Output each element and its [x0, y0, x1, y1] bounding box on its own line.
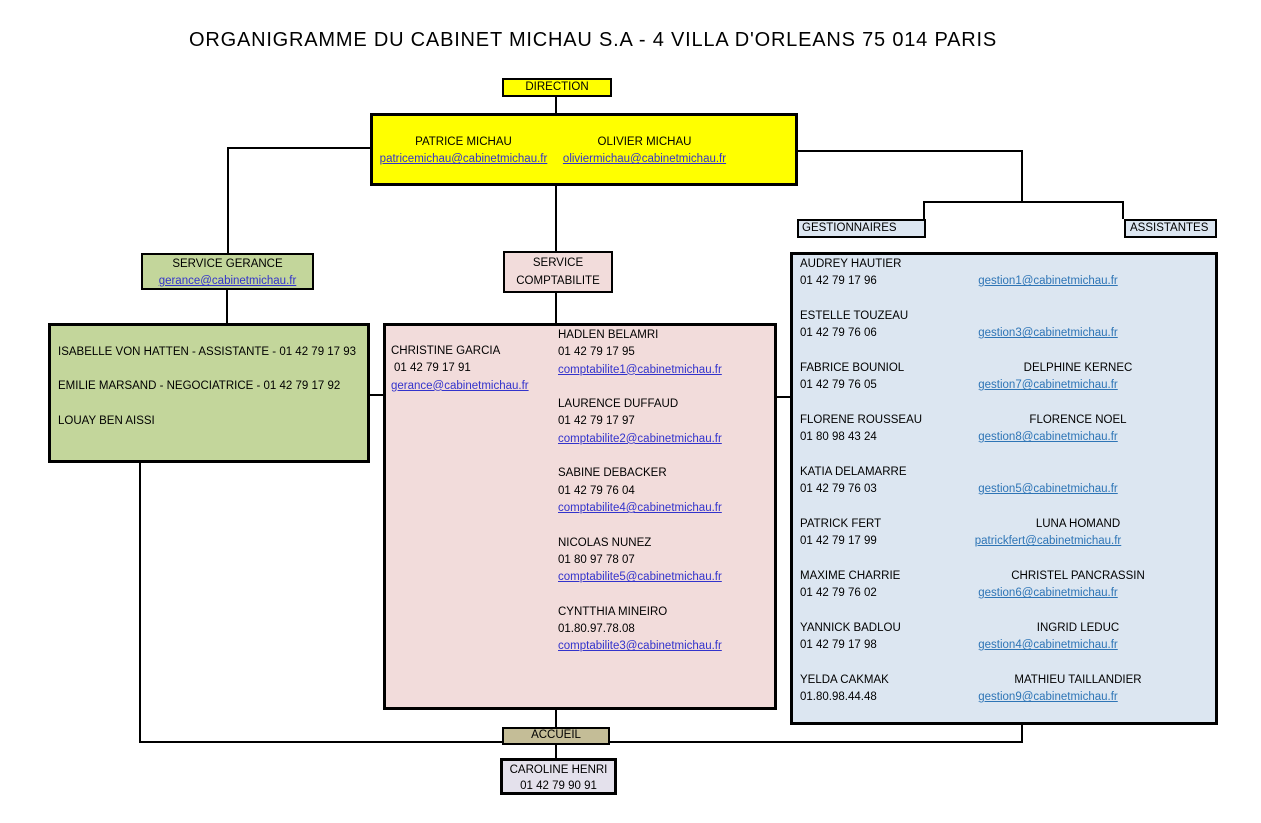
gestionnaire-name: KATIA DELAMARRE: [800, 464, 907, 481]
gestion-row: YELDA CAKMAK 01.80.98.44.48 MATHIEU TAIL…: [793, 672, 1215, 724]
comptabilite-staff-box: CHRISTINE GARCIA 01 42 79 17 91 gerance@…: [383, 323, 777, 710]
member-name: SABINE DEBACKER: [558, 465, 722, 482]
gestion-email-link[interactable]: gestion7@cabinetmichau.fr: [908, 377, 1188, 394]
gestion-email-link[interactable]: gestion9@cabinetmichau.fr: [908, 689, 1188, 706]
connector-green-to-pink: [369, 394, 384, 396]
gestion-row: MAXIME CHARRIE 01 42 79 76 02 CHRISTEL P…: [793, 568, 1215, 620]
member-phone: 01 42 79 90 91: [503, 778, 614, 794]
gestion-email-link[interactable]: gestion8@cabinetmichau.fr: [908, 429, 1188, 446]
member-email-link[interactable]: comptabilite4@cabinetmichau.fr: [558, 502, 722, 514]
comptabilite-manager: CHRISTINE GARCIA 01 42 79 17 91 gerance@…: [391, 343, 529, 395]
assistantes-header-box: ASSISTANTES: [1124, 219, 1217, 238]
member-email-link[interactable]: comptabilite2@cabinetmichau.fr: [558, 433, 722, 445]
gestion-row: FABRICE BOUNIOL 01 42 79 76 05 DELPHINE …: [793, 360, 1215, 412]
connector-accueil-to-caroline: [555, 744, 557, 759]
gerance-staff-item: EMILIE MARSAND - NEGOCIATRICE - 01 42 79…: [58, 378, 367, 395]
member-name: PATRICE MICHAU: [373, 134, 554, 151]
direction-member-olivier: OLIVIER MICHAU oliviermichau@cabinetmich…: [554, 134, 735, 169]
member-name: NICOLAS NUNEZ: [558, 535, 722, 552]
connector-bottom-right-h: [609, 741, 1023, 743]
comptabilite-staff-member: SABINE DEBACKER 01 42 79 76 04 comptabil…: [558, 465, 722, 517]
gestionnaires-header: GESTIONNAIRES: [802, 222, 897, 234]
accueil-label-box: ACCUEIL: [502, 727, 610, 745]
direction-label-box: DIRECTION: [502, 78, 612, 97]
gestion-staff-box: AUDREY HAUTIER 01 42 79 17 96 gestion1@c…: [790, 252, 1218, 725]
org-chart: ORGANIGRAMME DU CABINET MICHAU S.A - 4 V…: [0, 0, 1261, 823]
page-title: ORGANIGRAMME DU CABINET MICHAU S.A - 4 V…: [0, 29, 1186, 52]
gestionnaire-name: AUDREY HAUTIER: [800, 256, 901, 273]
connector-pink-to-blue: [776, 396, 791, 398]
member-name: CYNTTHIA MINEIRO: [558, 604, 722, 621]
gestion-row: AUDREY HAUTIER 01 42 79 17 96 gestion1@c…: [793, 256, 1215, 308]
gestionnaire-name: FABRICE BOUNIOL: [800, 360, 904, 377]
gestionnaire-phone: 01 42 79 76 02: [800, 585, 877, 602]
gestion-email-link[interactable]: gestion3@cabinetmichau.fr: [908, 325, 1188, 342]
member-phone: 01 42 79 17 95: [558, 344, 722, 361]
comptabilite-staff-member: NICOLAS NUNEZ 01 80 97 78 07 comptabilit…: [558, 535, 722, 587]
member-phone: 01.80.97.78.08: [558, 621, 722, 638]
gestionnaire-phone: 01 42 79 17 98: [800, 637, 877, 654]
service-comptabilite-title-line1: SERVICE: [505, 254, 611, 272]
gestion-email-link[interactable]: gestion5@cabinetmichau.fr: [908, 481, 1188, 498]
connector-comptabilite-to-box: [555, 292, 557, 323]
service-gerance-title: SERVICE GERANCE: [143, 256, 312, 273]
gestionnaire-phone: 01 42 79 76 05: [800, 377, 877, 394]
gestionnaire-phone: 01 42 79 17 99: [800, 533, 877, 550]
gestion-email-link[interactable]: gestion1@cabinetmichau.fr: [908, 273, 1188, 290]
gestion-email-link[interactable]: gestion6@cabinetmichau.fr: [908, 585, 1188, 602]
gestionnaire-name: YANNICK BADLOU: [800, 620, 901, 637]
connector-right-branch-v: [1021, 150, 1023, 203]
gestion-row: ESTELLE TOUZEAU 01 42 79 76 06 gestion3@…: [793, 308, 1215, 360]
connector-pink-to-accueil: [555, 708, 557, 728]
gestionnaires-header-box: GESTIONNAIRES: [797, 219, 926, 238]
comptabilite-staff-member: LAURENCE DUFFAUD 01 42 79 17 97 comptabi…: [558, 396, 722, 448]
gestionnaire-name: ESTELLE TOUZEAU: [800, 308, 908, 325]
direction-member-patrice: PATRICE MICHAU patricemichau@cabinetmich…: [373, 134, 554, 169]
member-name: CHRISTINE GARCIA: [391, 343, 529, 360]
accueil-label: ACCUEIL: [531, 729, 581, 741]
direction-label: DIRECTION: [525, 81, 588, 93]
assistante-name: MATHIEU TAILLANDIER: [943, 672, 1213, 689]
member-email-link[interactable]: comptabilite5@cabinetmichau.fr: [558, 571, 722, 583]
gestionnaire-phone: 01 42 79 76 03: [800, 481, 877, 498]
direction-box: PATRICE MICHAU patricemichau@cabinetmich…: [370, 113, 798, 186]
gestionnaire-phone: 01 42 79 76 06: [800, 325, 877, 342]
member-email-link[interactable]: comptabilite3@cabinetmichau.fr: [558, 640, 722, 652]
member-name: HADLEN BELAMRI: [558, 327, 722, 344]
member-email-link[interactable]: gerance@cabinetmichau.fr: [391, 380, 529, 392]
gerance-staff-item: LOUAY BEN AISSI: [58, 413, 367, 430]
gestion-email-link[interactable]: gestion4@cabinetmichau.fr: [908, 637, 1188, 654]
gestion-row: FLORENE ROUSSEAU 01 80 98 43 24 FLORENCE…: [793, 412, 1215, 464]
service-comptabilite-header-box: SERVICE COMPTABILITE: [503, 251, 613, 293]
gestion-row: YANNICK BADLOU 01 42 79 17 98 INGRID LED…: [793, 620, 1215, 672]
assistante-name: CHRISTEL PANCRASSIN: [943, 568, 1213, 585]
service-gerance-email-link[interactable]: gerance@cabinetmichau.fr: [159, 275, 297, 287]
service-gerance-header-box: SERVICE GERANCE gerance@cabinetmichau.fr: [141, 253, 314, 290]
gestion-row: KATIA DELAMARRE 01 42 79 76 03 gestion5@…: [793, 464, 1215, 516]
service-comptabilite-title-line2: COMPTABILITE: [505, 272, 611, 290]
accueil-person-box: CAROLINE HENRI 01 42 79 90 91: [500, 758, 617, 795]
comptabilite-staff-member: CYNTTHIA MINEIRO 01.80.97.78.08 comptabi…: [558, 604, 722, 656]
gestionnaire-phone: 01.80.98.44.48: [800, 689, 877, 706]
connector-bottom-left-h: [139, 741, 503, 743]
member-email-link[interactable]: oliviermichau@cabinetmichau.fr: [563, 153, 726, 165]
assistante-name: INGRID LEDUC: [943, 620, 1213, 637]
gestionnaire-phone: 01 42 79 17 96: [800, 273, 877, 290]
assistantes-header: ASSISTANTES: [1130, 222, 1208, 234]
connector-gerance-to-box: [226, 289, 228, 323]
connector-board-to-gerance-v: [227, 147, 229, 253]
gerance-staff-box: ISABELLE VON HATTEN - ASSISTANTE - 01 42…: [48, 323, 370, 463]
connector-board-to-comptabilite: [555, 186, 557, 252]
member-email-link[interactable]: patricemichau@cabinetmichau.fr: [380, 153, 548, 165]
member-name: OLIVIER MICHAU: [554, 134, 735, 151]
gestionnaire-name: FLORENE ROUSSEAU: [800, 412, 922, 429]
member-email-link[interactable]: comptabilite1@cabinetmichau.fr: [558, 364, 722, 376]
gestion-email-link[interactable]: patrickfert@cabinetmichau.fr: [908, 533, 1188, 550]
gerance-staff-item: ISABELLE VON HATTEN - ASSISTANTE - 01 42…: [58, 344, 367, 361]
connector-bracket-h: [923, 201, 1124, 203]
connector-board-right-h: [796, 150, 1023, 152]
member-name: CAROLINE HENRI: [503, 762, 614, 778]
member-phone: 01 80 97 78 07: [558, 552, 722, 569]
connector-board-left-h: [227, 147, 372, 149]
gestionnaire-name: YELDA CAKMAK: [800, 672, 889, 689]
gestion-row: PATRICK FERT 01 42 79 17 99 LUNA HOMAND …: [793, 516, 1215, 568]
member-name: LAURENCE DUFFAUD: [558, 396, 722, 413]
member-phone: 01 42 79 76 04: [558, 483, 722, 500]
gestionnaire-name: PATRICK FERT: [800, 516, 881, 533]
member-phone: 01 42 79 17 91: [391, 360, 529, 377]
assistante-name: FLORENCE NOEL: [943, 412, 1213, 429]
gestionnaire-name: MAXIME CHARRIE: [800, 568, 900, 585]
assistante-name: DELPHINE KERNEC: [943, 360, 1213, 377]
connector-bracket-to-assistantes: [1122, 201, 1124, 219]
connector-green-down-v: [139, 461, 141, 743]
gestionnaire-phone: 01 80 98 43 24: [800, 429, 877, 446]
member-phone: 01 42 79 17 97: [558, 413, 722, 430]
comptabilite-staff-member: HADLEN BELAMRI 01 42 79 17 95 comptabili…: [558, 327, 722, 379]
assistante-name: LUNA HOMAND: [943, 516, 1213, 533]
connector-direction-to-board: [555, 96, 557, 114]
connector-blue-down-v: [1021, 723, 1023, 743]
connector-bracket-to-gestionnaires: [923, 201, 925, 219]
